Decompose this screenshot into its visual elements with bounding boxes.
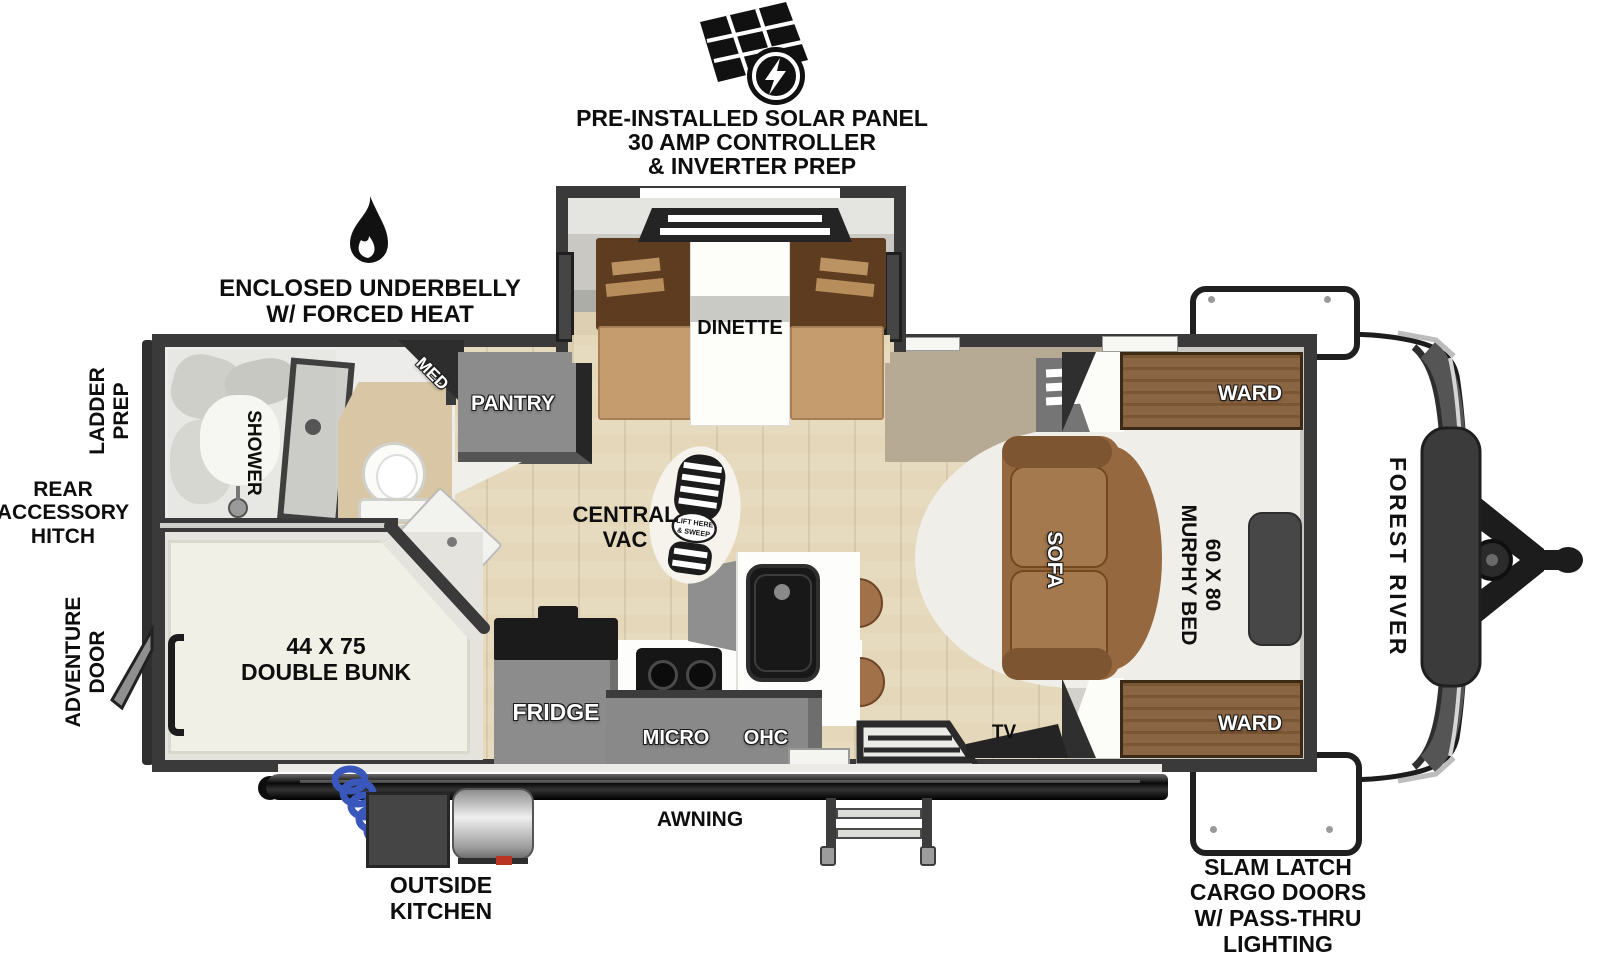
central-vac-label: CENTRAL VAC bbox=[555, 498, 695, 558]
step-tread bbox=[836, 808, 922, 819]
cargo-note-line1: SLAM LATCH bbox=[1204, 855, 1352, 881]
dinette-label: DINETTE bbox=[688, 317, 792, 339]
shower-head bbox=[229, 499, 247, 517]
tank-valve bbox=[496, 856, 512, 865]
central-vac-line1: CENTRAL bbox=[572, 503, 677, 528]
murphy-name-line: MURPHY BED bbox=[1176, 505, 1200, 646]
entry-step-well bbox=[860, 724, 972, 760]
slideout-roof-vent bbox=[638, 208, 852, 242]
ward-top-label: WARD bbox=[1190, 382, 1310, 406]
outside-kitchen-line2: KITCHEN bbox=[390, 899, 492, 925]
outside-kitchen-tank bbox=[452, 788, 534, 860]
tv-label: TV bbox=[984, 722, 1024, 743]
adventure-door-leaf bbox=[112, 630, 152, 708]
shower-door-handle bbox=[305, 419, 321, 435]
shower-label: SHOWER bbox=[205, 405, 301, 501]
pantry-label: PANTRY bbox=[448, 392, 578, 416]
cargo-note-line4: LIGHTING bbox=[1223, 932, 1333, 958]
fridge-label: FRIDGE bbox=[494, 700, 618, 726]
sofa-label: SOFA bbox=[1004, 510, 1104, 610]
ward-bottom-label: WARD bbox=[1190, 712, 1310, 736]
murphy-bed-label: 60 X 80 MURPHY BED bbox=[1120, 495, 1280, 655]
outside-kitchen-line1: OUTSIDE bbox=[390, 873, 492, 899]
step-rail bbox=[922, 798, 932, 850]
awning-label: AWNING bbox=[630, 808, 770, 832]
step-foot bbox=[920, 846, 936, 866]
sink-faucet bbox=[774, 584, 790, 600]
outside-kitchen-label: OUTSIDE KITCHEN bbox=[361, 870, 521, 928]
bunk-name-line: DOUBLE BUNK bbox=[241, 660, 411, 686]
double-bunk-label: 44 X 75 DOUBLE BUNK bbox=[226, 632, 426, 688]
outside-kitchen-griddle bbox=[366, 792, 450, 868]
tank-base bbox=[458, 858, 528, 864]
step-tread bbox=[836, 828, 922, 839]
bunk-size-line: 44 X 75 bbox=[286, 634, 365, 660]
cargo-doors-label: SLAM LATCH CARGO DOORS W/ PASS-THRU LIGH… bbox=[1148, 848, 1408, 964]
bath-faucet bbox=[447, 537, 457, 547]
central-vac-line2: VAC bbox=[603, 528, 648, 553]
step-foot bbox=[820, 846, 836, 866]
bunk-diagonal-wall bbox=[390, 526, 484, 628]
cargo-note-line3: W/ PASS-THRU bbox=[1195, 906, 1362, 932]
step-rail bbox=[826, 798, 836, 850]
floorplan-canvas: PRE-INSTALLED SOLAR PANEL 30 AMP CONTROL… bbox=[0, 0, 1600, 965]
cargo-note-line2: CARGO DOORS bbox=[1190, 880, 1366, 906]
ohc-label: OHC bbox=[716, 727, 816, 749]
murphy-size-line: 60 X 80 bbox=[1200, 539, 1224, 611]
